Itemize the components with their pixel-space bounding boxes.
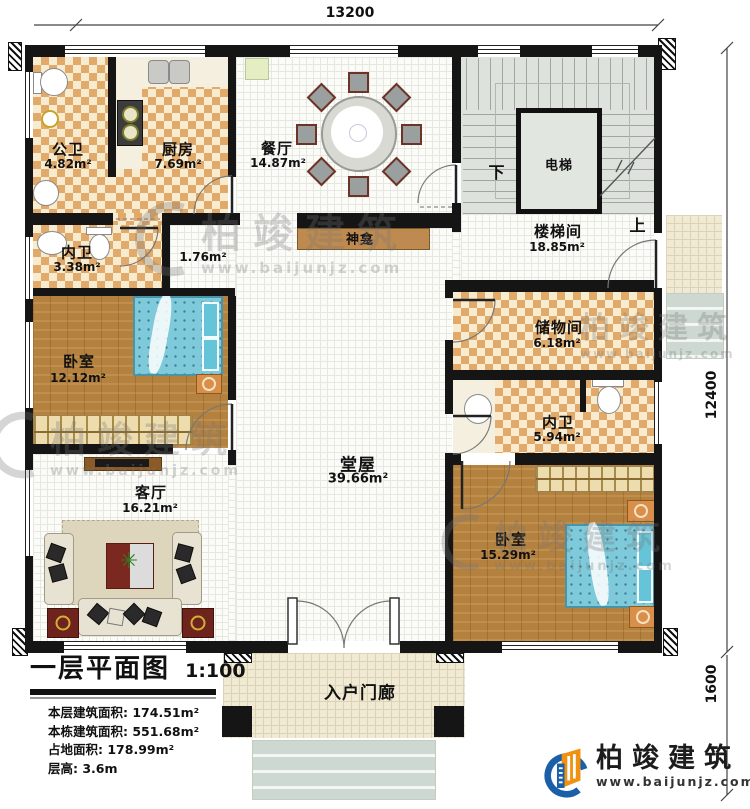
wall [228, 57, 236, 177]
kitchen-sink-icon [169, 60, 190, 84]
stove-burner [122, 106, 139, 123]
bathroom-east-partition [580, 378, 586, 412]
room-area-shenkan: 1.76m² [179, 250, 226, 264]
dining-chair [348, 72, 369, 93]
plant-icon: ✳ [117, 550, 141, 574]
window [25, 72, 33, 138]
room-label-chuwujian: 储物间 [535, 317, 583, 338]
hall-floor-strip2 [228, 465, 236, 641]
stat-line: 本栋建筑面积: 551.68m² [48, 723, 310, 742]
sofa-pillow [107, 608, 126, 627]
window [25, 470, 33, 556]
bed-pillow [202, 302, 219, 338]
toilet-icon [40, 68, 68, 96]
dimension-top: 13200 [326, 5, 375, 21]
company-logo-icon [541, 744, 588, 800]
bed-pillow [202, 338, 219, 371]
wall [25, 213, 113, 225]
plan-scale: 1:100 [185, 660, 245, 682]
stairs-down-label: 下 [488, 159, 505, 183]
room-label-rumenlang: 入户门廊 [324, 679, 396, 704]
stat-line: 层高: 3.6m [48, 760, 310, 779]
wall [398, 45, 478, 57]
dining-hall-passage-floor [236, 213, 297, 228]
wall [25, 444, 173, 454]
room-label-loutijian: 楼梯间 [534, 221, 582, 242]
axis-hatch [8, 42, 22, 71]
room-area-neiwei-north: 3.38m² [53, 260, 100, 274]
window [25, 322, 33, 408]
wall [205, 45, 290, 57]
bathroom-north-door-sill [110, 213, 162, 225]
sink-icon [33, 180, 59, 206]
door-opening [654, 233, 662, 288]
wall-right [654, 45, 662, 653]
dining-chair [296, 124, 317, 145]
axis-hatch [436, 653, 464, 663]
wardrobe [535, 466, 655, 492]
wall [445, 292, 453, 298]
side-terrace-floor [666, 215, 722, 293]
room-label-dianti: 电梯 [545, 155, 573, 174]
dining-chair [348, 176, 369, 197]
wall [520, 45, 592, 57]
room-label-woshi-east: 卧室 [495, 529, 527, 550]
wall [445, 465, 453, 641]
wall [452, 203, 461, 232]
company-logo: 柏竣建筑 www.baijunjz.com [541, 744, 750, 800]
sink-icon [464, 394, 492, 424]
room-area-canting: 14.87m² [250, 156, 306, 170]
wall [162, 213, 240, 225]
side-table [182, 608, 214, 638]
side-table [47, 608, 79, 638]
room-label-woshi-west: 卧室 [63, 351, 95, 372]
toilet-icon [597, 386, 621, 414]
wall [228, 450, 236, 465]
room-area-chufang: 7.69m² [154, 157, 201, 171]
stair-hall-floor2 [452, 232, 461, 280]
bed-pillow [637, 568, 653, 603]
wall [162, 225, 170, 291]
stat-line: 本层建筑面积: 174.51m² [48, 704, 310, 723]
room-area-loutijian: 18.85m² [529, 240, 585, 254]
room-area-chuwujian: 6.18m² [533, 336, 580, 350]
side-terrace-steps [666, 293, 724, 359]
dimension-right: 12400 [704, 371, 720, 420]
room-area-tangwu: 39.66m² [328, 472, 388, 487]
stat-line: 占地面积: 178.99m² [48, 741, 310, 760]
hall-floor [236, 228, 452, 641]
room-label-shenkan: 神龛 [346, 229, 374, 248]
wall [515, 453, 662, 465]
window [25, 237, 33, 299]
nightstand [196, 374, 222, 394]
wall [297, 213, 461, 228]
title-underline-thin [30, 697, 216, 699]
title-block: 一层平面图 1:100 本层建筑面积: 174.51m² 本栋建筑面积: 551… [30, 648, 310, 778]
hall-floor-strip1 [228, 225, 236, 296]
dimension-right-porch: 1600 [704, 665, 720, 704]
stairs-up-label: 上 [629, 212, 646, 236]
room-area-gongwei: 4.82m² [44, 157, 91, 171]
dining-table-center [349, 124, 367, 142]
wall [445, 340, 453, 414]
wall [638, 45, 662, 57]
bed-pillow [637, 531, 653, 568]
room-area-keting: 16.21m² [122, 501, 178, 515]
dining-cabinet [245, 58, 269, 80]
title-underline [30, 689, 216, 695]
stove-burner [122, 124, 139, 141]
floor-plan-page: ✳ [0, 0, 750, 809]
company-website: www.baijunjz.com [596, 774, 750, 789]
dining-chair [401, 124, 422, 145]
porch-column [434, 706, 464, 737]
room-area-woshi-east: 15.29m² [480, 548, 536, 562]
wall [452, 57, 461, 163]
wall [108, 57, 116, 177]
wall [453, 370, 654, 380]
wall [25, 288, 235, 296]
shower-head-icon [41, 110, 59, 128]
window [654, 382, 662, 444]
room-label-keting: 客厅 [135, 482, 167, 503]
nightstand [627, 500, 655, 522]
plan-title: 一层平面图 [30, 648, 170, 685]
room-area-woshi-west: 12.12m² [50, 371, 106, 385]
window [502, 641, 618, 653]
wall [445, 453, 461, 465]
room-area-neiwei-east: 5.94m² [533, 430, 580, 444]
wall [25, 45, 65, 57]
kitchen-sink-icon [148, 60, 169, 84]
company-name: 柏竣建筑 [596, 744, 750, 774]
tv-icon [95, 459, 149, 467]
nightstand [629, 606, 657, 628]
door-sill [108, 177, 116, 213]
wardrobe [33, 415, 193, 445]
wall [445, 280, 662, 292]
axis-hatch [663, 628, 678, 656]
wall [228, 296, 236, 400]
